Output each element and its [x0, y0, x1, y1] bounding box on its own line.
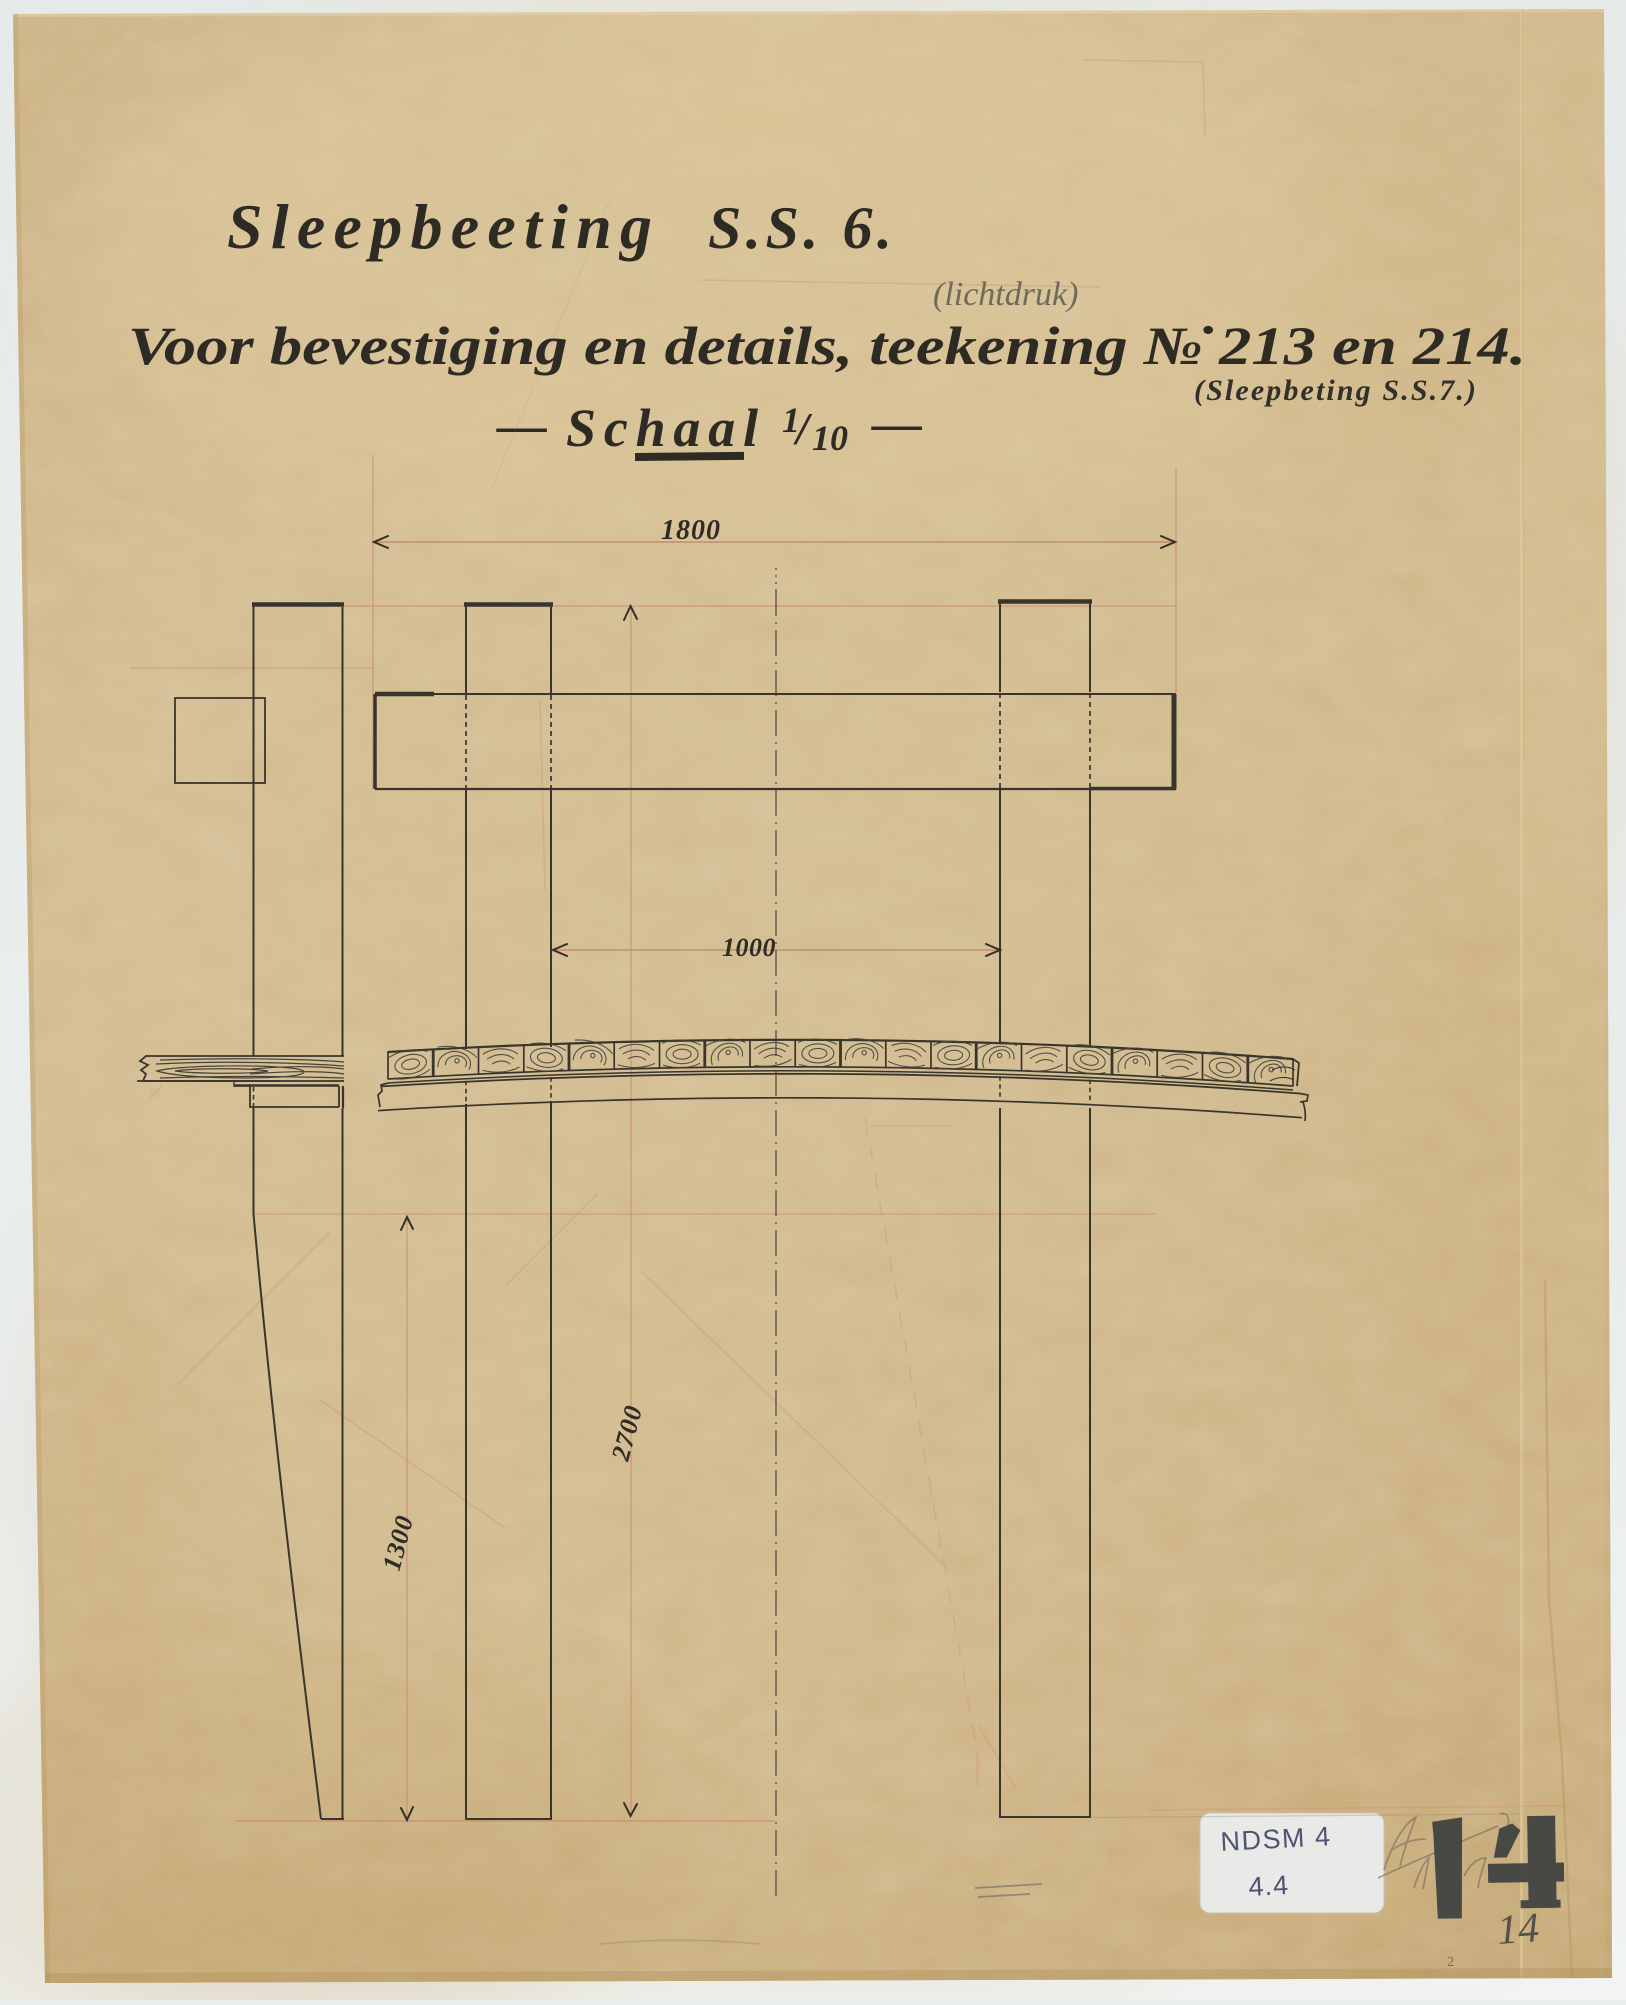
svg-text:—: —	[871, 395, 922, 451]
svg-text:NDSM 4: NDSM 4	[1220, 1821, 1332, 1857]
svg-text:—: —	[496, 397, 547, 453]
svg-text:(lichtdruk): (lichtdruk)	[933, 276, 1078, 313]
svg-text:4.4: 4.4	[1248, 1870, 1290, 1902]
svg-text:2: 2	[1447, 1955, 1454, 1970]
svg-text:1800: 1800	[661, 515, 721, 546]
svg-text:14: 14	[1495, 1905, 1540, 1954]
svg-text:10: 10	[812, 418, 848, 458]
svg-text:1000: 1000	[722, 933, 776, 962]
svg-text:Schaal: Schaal	[566, 398, 758, 458]
svg-text:Voor bevestiging en details, t: Voor bevestiging en details, teekening №…	[128, 316, 1526, 376]
